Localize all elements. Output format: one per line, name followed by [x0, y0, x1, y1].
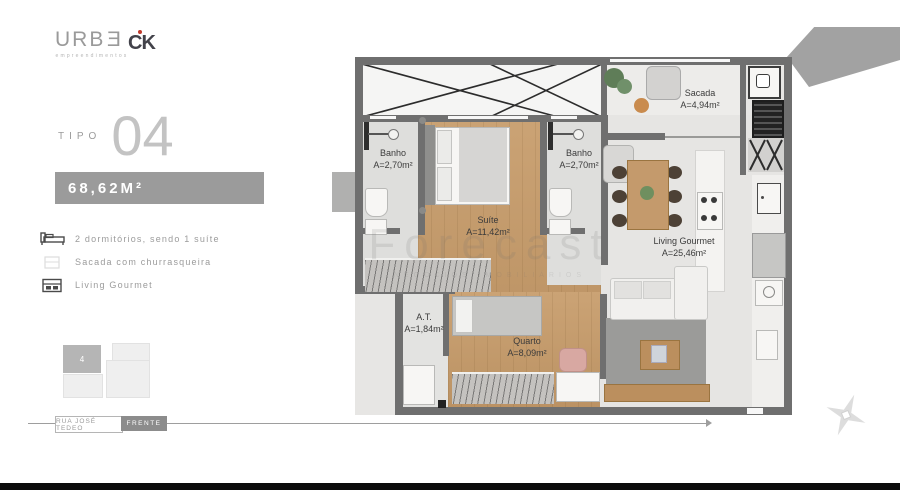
banho-right-shower-head: [573, 129, 584, 140]
floor-plan: Sacada A=4,94m² Banho A=2,70m² Banho A=2…: [355, 57, 792, 415]
room-area: A=1,84m²: [374, 324, 474, 336]
bed-icon: [40, 232, 66, 247]
ck-logo-text: CK: [128, 32, 155, 54]
room-label-suite: Suíte A=11,42m²: [438, 215, 538, 238]
room-area: A=4,94m²: [650, 100, 750, 112]
dining-chair: [667, 166, 682, 179]
room-area: A=8,09m²: [477, 348, 577, 360]
sofa-chaise: [674, 266, 708, 320]
suite-lamp: [419, 207, 426, 214]
entry-door-handle: [761, 196, 764, 199]
minimap-block: [63, 374, 103, 398]
feature-dormitorios: 2 dormitórios, sendo 1 suíte: [40, 230, 220, 248]
banho-right-shower-door: [548, 122, 553, 150]
burner: [711, 215, 717, 221]
ck-logo-red-dot: [138, 30, 142, 34]
sofa-cushion: [614, 281, 642, 299]
room-area: A=2,70m²: [343, 160, 443, 172]
shaft-x-icon: [748, 138, 784, 172]
suite-bed-duvet: [459, 128, 507, 202]
minimap-block: [106, 360, 150, 398]
compass-north-icon: [824, 392, 868, 438]
dining-chair: [612, 214, 627, 227]
room-label-living: Living Gourmet A=25,46m²: [634, 236, 734, 259]
feature-label: Living Gourmet: [75, 280, 153, 290]
wall-banholeft-suite: [418, 115, 425, 235]
room-label-sacada: Sacada A=4,94m²: [650, 88, 750, 111]
banho-left-toilet: [365, 188, 388, 217]
washing-machine: [403, 365, 435, 405]
suite-bed-pillow: [437, 167, 452, 201]
window-banho-right: [551, 116, 577, 119]
gourmet-cabinet-icon: [40, 278, 66, 293]
room-area: A=25,46m²: [634, 248, 734, 260]
fridge: [752, 233, 786, 278]
unit-type-label: TIPO: [58, 131, 101, 142]
kitchen-sink: [756, 330, 778, 360]
sacada-side-table: [634, 98, 649, 113]
room-name: Quarto: [477, 336, 577, 348]
feature-label: Sacada com churrasqueira: [75, 257, 211, 267]
urbe-logo-subtext: empreendimentos: [55, 53, 129, 59]
burner: [701, 197, 707, 203]
minimap-unit-highlight: 4: [63, 345, 101, 373]
room-label-banho-left: Banho A=2,70m²: [343, 148, 443, 171]
dining-centerpiece-plant: [640, 186, 654, 200]
oven-dial: [763, 286, 775, 298]
hatch-x-lines: [362, 64, 602, 117]
sofa-cushion: [643, 281, 671, 299]
unit-type-number: 04: [111, 108, 173, 164]
room-label-banho-right: Banho A=2,70m²: [529, 148, 629, 171]
wall-suite-banhoright: [540, 115, 547, 235]
street-axis-arrow-icon: [706, 419, 712, 427]
minimap-unit-number: 4: [80, 355, 84, 364]
floor-drain: [438, 400, 446, 408]
churrasqueira-grill: [752, 100, 784, 138]
window-banho-left: [370, 116, 396, 119]
left-wall-tab: [332, 172, 356, 212]
suite-lamp: [419, 117, 426, 124]
burner: [701, 215, 707, 221]
banho-right-toilet: [549, 188, 572, 217]
quarto-wardrobe: [452, 372, 554, 404]
banho-right-sink: [549, 219, 571, 235]
wall-left-upper: [355, 57, 363, 294]
banho-left-shower-head: [388, 129, 399, 140]
banho-right-shower-arm: [553, 133, 575, 135]
room-name: Living Gourmet: [634, 236, 734, 248]
wall-utility-divider: [740, 64, 746, 175]
room-name: Banho: [529, 148, 629, 160]
dining-chair: [667, 214, 682, 227]
wall-bottom: [395, 407, 792, 415]
suite-wardrobe: [365, 258, 491, 292]
wall-sacada-bottom: [607, 133, 665, 140]
balcony-grill-icon: [40, 255, 66, 270]
sacada-plant: [617, 79, 632, 94]
room-label-at: A.T. A=1,84m²: [374, 312, 474, 335]
room-name: A.T.: [374, 312, 474, 324]
tv-console: [604, 384, 710, 402]
room-name: Sacada: [650, 88, 750, 100]
room-name: Suíte: [438, 215, 538, 227]
area-badge: 68,62M²: [55, 172, 264, 204]
banho-left-shower-arm: [368, 133, 390, 135]
feature-sacada: Sacada com churrasqueira: [40, 253, 211, 271]
room-area: A=11,42m²: [438, 227, 538, 239]
bottom-letterbox-bar: [0, 483, 900, 490]
urbe-logo-text: URBE: [55, 28, 129, 52]
burner: [711, 197, 717, 203]
room-area: A=2,70m²: [529, 160, 629, 172]
dining-chair: [667, 190, 682, 203]
ck-logo: CK: [128, 32, 900, 55]
coffee-table-decor: [651, 345, 667, 363]
street-name-label: RUA JOSÉ TEDEO: [55, 416, 123, 433]
wall-left-lower: [395, 286, 403, 415]
unit-type: TIPO 04: [58, 108, 174, 164]
wall-suite-hall: [601, 235, 608, 265]
banho-left-shower-door: [364, 122, 369, 150]
dining-chair: [612, 190, 627, 203]
room-name: Banho: [343, 148, 443, 160]
feature-living-gourmet: Living Gourmet: [40, 276, 153, 294]
door-bottom-notch: [747, 408, 763, 414]
street-front-label: FRENTE: [121, 416, 167, 431]
window-suite: [448, 116, 528, 119]
urbe-logo: URBE empreendimentos: [55, 28, 129, 59]
quarto-desk: [556, 372, 600, 402]
banho-left-sink: [365, 219, 387, 235]
service-sink-basin: [756, 74, 770, 88]
site-plan-minimap: 4: [58, 338, 158, 400]
room-label-quarto: Quarto A=8,09m²: [477, 336, 577, 359]
feature-label: 2 dormitórios, sendo 1 suíte: [75, 234, 220, 244]
window-sacada: [610, 59, 730, 62]
sacada-sliding-door-glass: [665, 136, 741, 138]
